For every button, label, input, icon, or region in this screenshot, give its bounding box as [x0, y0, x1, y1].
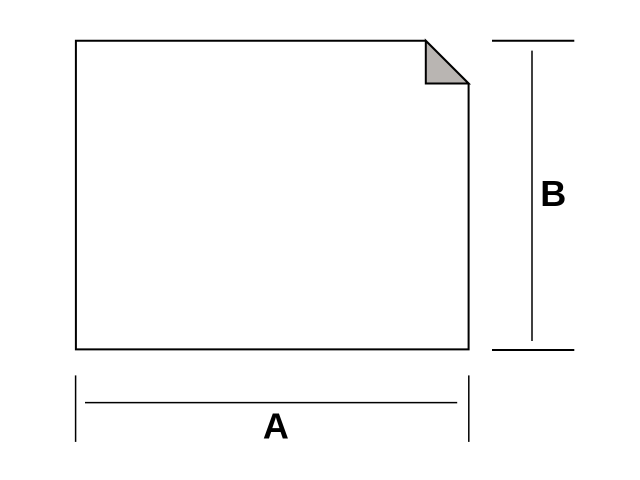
svg-text:A: A	[263, 406, 289, 447]
svg-text:B: B	[540, 173, 566, 214]
